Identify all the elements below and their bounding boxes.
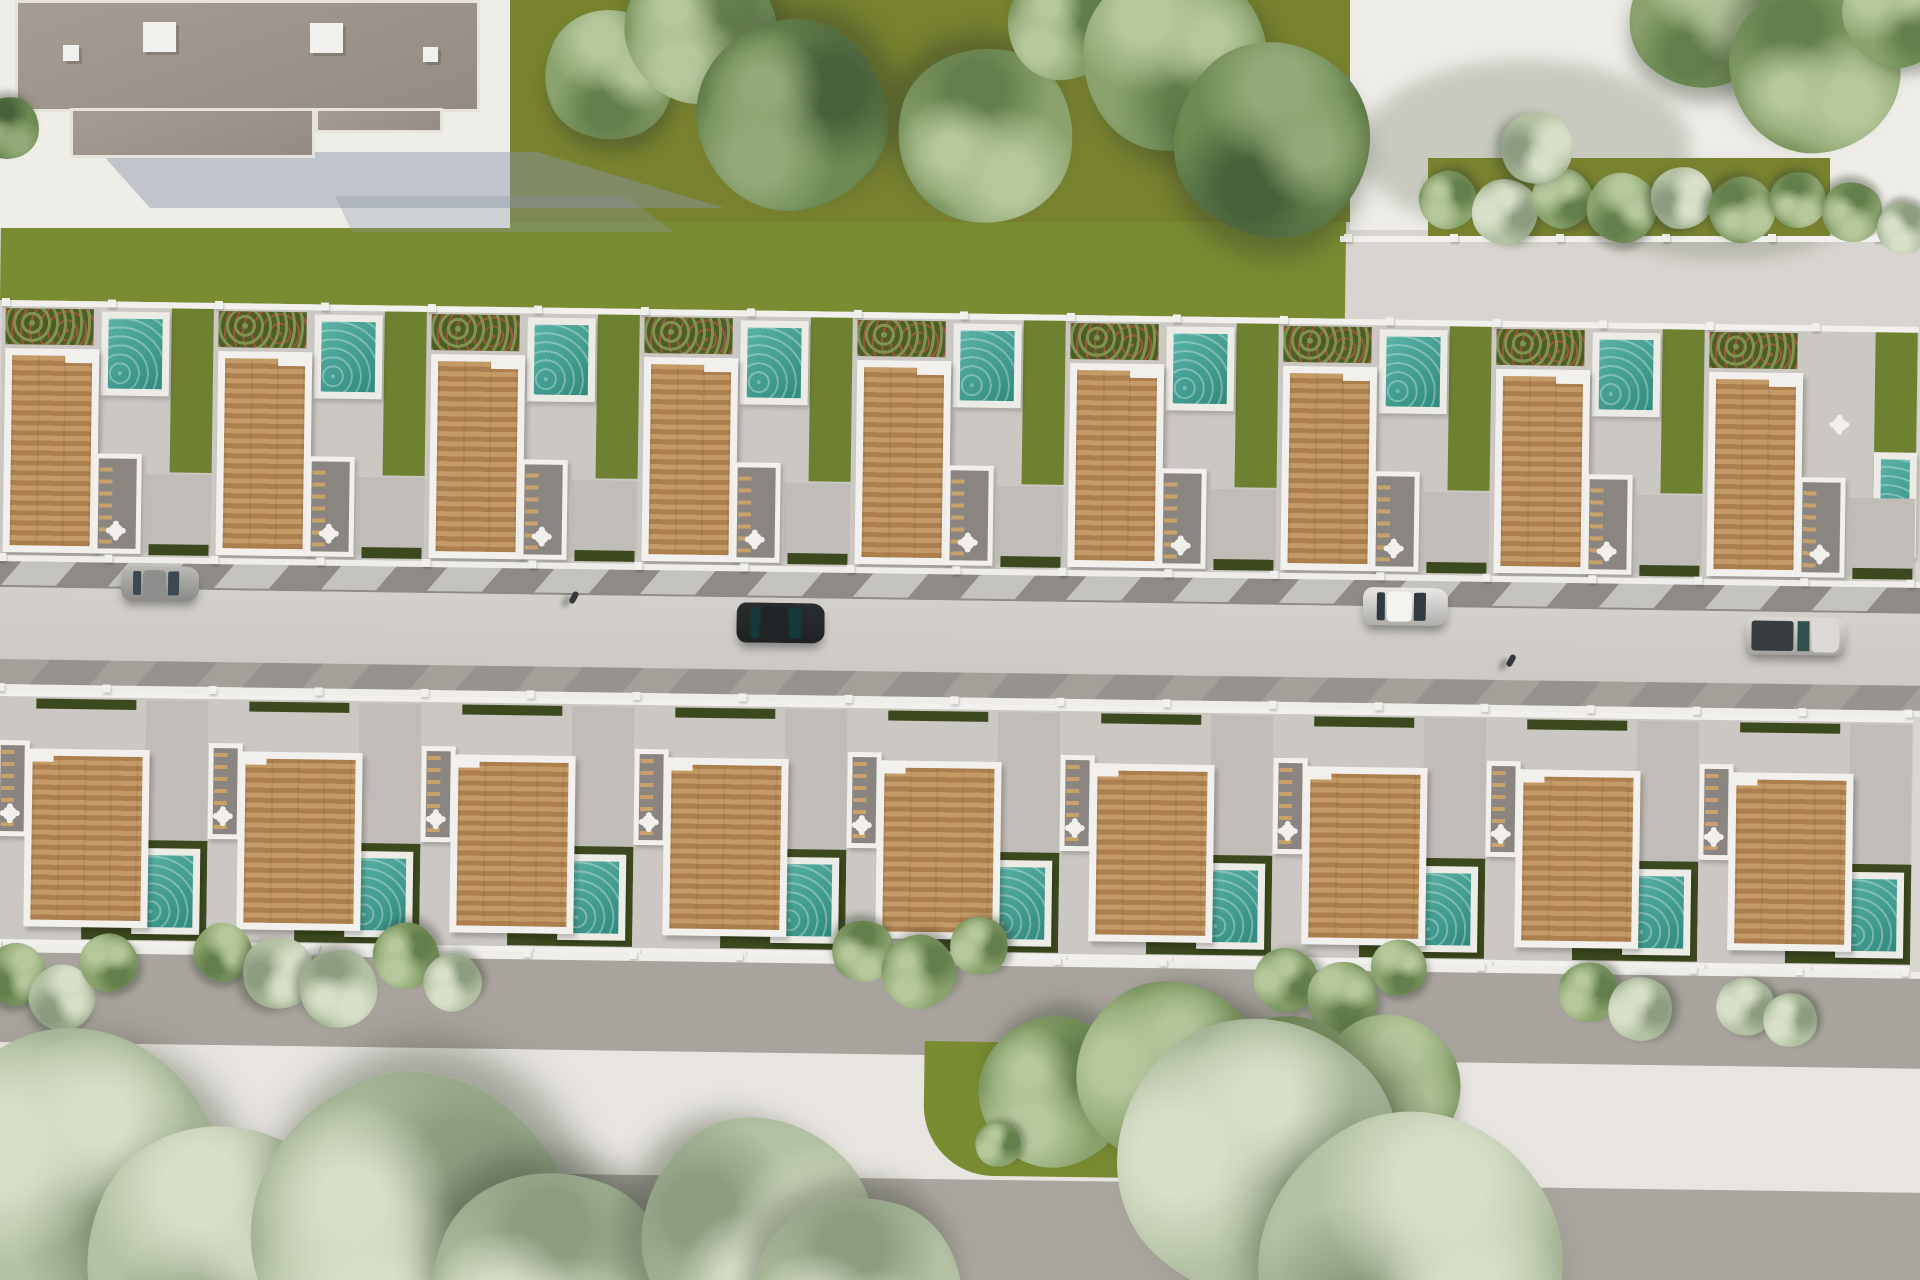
- street-fence-post: [1268, 701, 1276, 709]
- villa-lot: [206, 693, 423, 951]
- driveway: [1635, 721, 1699, 862]
- apartment-building-roof: [15, 0, 480, 112]
- apartment-building-roof: [315, 108, 443, 133]
- street-shrubs: [888, 710, 988, 721]
- villa-roof-terrace: [23, 748, 149, 928]
- street-fence-post: [1798, 708, 1806, 716]
- villa-roof-terrace: [215, 351, 312, 556]
- lot-garden-grass: [1022, 318, 1066, 485]
- planter: [431, 314, 519, 351]
- rooftop-unit: [143, 22, 176, 52]
- patio-table: [1813, 547, 1827, 561]
- stair-annex: [731, 462, 780, 563]
- car-rear-glass: [1376, 592, 1385, 620]
- villa-roof-terrace: [428, 354, 525, 559]
- street-fence-post: [632, 692, 640, 700]
- street-shrubs: [574, 550, 634, 562]
- driveway: [357, 477, 424, 556]
- hedge-fence-post: [1768, 234, 1776, 242]
- villa-wood-deck: [649, 364, 732, 555]
- villa-roof-step: [26, 748, 54, 761]
- villa-roof-terrace: [1727, 772, 1853, 952]
- driveway: [144, 700, 208, 841]
- driveway: [1848, 498, 1915, 577]
- pool: [1386, 336, 1441, 407]
- pool: [1599, 339, 1654, 410]
- villa-wood-deck: [1095, 770, 1207, 936]
- villa-lot: [211, 303, 428, 561]
- car: [1363, 587, 1449, 626]
- driveway: [570, 480, 637, 559]
- villa-lot: [1058, 705, 1275, 963]
- street-fence-post: [528, 560, 536, 568]
- hedge-fence-post: [1450, 234, 1458, 242]
- lot-garden-grass: [170, 306, 214, 473]
- villa-roof-terrace: [641, 357, 738, 562]
- promenade-fence-post: [311, 946, 319, 954]
- villa-wood-deck: [1521, 776, 1633, 942]
- street-fence-post: [315, 687, 323, 695]
- street-fence-post: [1376, 572, 1384, 580]
- street-shrubs: [148, 544, 208, 556]
- villa-lot: [1063, 315, 1280, 573]
- car-roof: [1811, 620, 1839, 652]
- car-rear-glass: [133, 571, 141, 595]
- promenade-fence-post: [1901, 969, 1909, 977]
- villa-lot: [845, 702, 1062, 960]
- street-fence-post: [1694, 577, 1702, 585]
- driveway: [783, 483, 850, 562]
- street-fence-post: [420, 689, 428, 697]
- villa-roof-step: [1090, 763, 1118, 776]
- lot-fence-post: [960, 311, 968, 319]
- street-fence-post: [103, 684, 111, 692]
- villa-roof-step: [664, 757, 692, 770]
- planter: [1070, 323, 1158, 360]
- patio-table: [535, 529, 549, 543]
- driveway: [1635, 495, 1702, 574]
- villa-wood-deck: [10, 355, 93, 546]
- street-shrubs: [1000, 556, 1060, 568]
- villa-lot: [0, 690, 210, 948]
- lot-fence-post: [2, 298, 10, 306]
- lot-fence-post: [1493, 319, 1501, 327]
- pool-deck: [527, 317, 596, 402]
- planter: [5, 308, 93, 345]
- villa-roof-step: [704, 358, 738, 372]
- car-roof: [1386, 591, 1412, 621]
- pool-deck: [953, 323, 1022, 408]
- street-fence-post: [1056, 698, 1064, 706]
- street-shrubs: [1314, 716, 1414, 727]
- truck-bed: [1751, 620, 1793, 651]
- villa-roof-step: [1556, 370, 1590, 384]
- pool: [747, 327, 802, 398]
- street-fence-post: [422, 559, 430, 567]
- driveway: [1848, 724, 1912, 865]
- car-rear-glass: [750, 608, 759, 638]
- villa-lot: [419, 696, 636, 954]
- promenade-fence-post: [629, 951, 637, 959]
- lot-fence-post: [1812, 323, 1820, 331]
- driveway: [1422, 718, 1486, 859]
- street-fence-post: [526, 690, 534, 698]
- street-fence-post: [1586, 705, 1594, 713]
- villa-roof-terrace: [662, 757, 788, 937]
- car-roof: [143, 570, 167, 596]
- stair-annex: [92, 453, 141, 554]
- villa-lot: [1484, 711, 1701, 969]
- car: [121, 566, 199, 601]
- lot-fence-post: [534, 305, 542, 313]
- pool-deck: [1166, 326, 1235, 411]
- villa-roof-terrace: [1088, 763, 1214, 943]
- lot-garden-grass: [1235, 321, 1279, 488]
- driveway: [1209, 715, 1273, 856]
- lot-fence-post: [1706, 322, 1714, 330]
- villa-wood-deck: [1734, 779, 1846, 945]
- pool: [1173, 333, 1228, 404]
- street-shrubs: [787, 553, 847, 565]
- street-fence-post: [1270, 571, 1278, 579]
- street-shrubs: [1639, 565, 1699, 577]
- lot-fence-post: [1280, 316, 1288, 324]
- villa-wood-deck: [1074, 370, 1157, 561]
- street-shrubs: [1527, 719, 1627, 730]
- hedge-fence-post: [1344, 234, 1352, 242]
- patio-table: [1387, 541, 1401, 555]
- street-shrubs: [462, 704, 562, 715]
- lot-fence-post: [641, 307, 649, 315]
- pool-deck: [314, 314, 383, 399]
- villa-lot: [637, 309, 854, 567]
- patio-table: [642, 815, 656, 829]
- hedge-fence-post: [1556, 234, 1564, 242]
- villa-lot: [1276, 318, 1493, 576]
- villa-roof-terrace: [1280, 366, 1377, 571]
- car: [1745, 616, 1846, 655]
- rooftop-unit: [63, 45, 79, 61]
- promenade-fence-post: [735, 952, 743, 960]
- villa-wood-deck: [223, 358, 306, 549]
- pool: [534, 324, 589, 395]
- patio-table: [3, 806, 17, 820]
- villa-roof-terrace: [854, 360, 951, 565]
- patio-table: [1281, 824, 1295, 838]
- stair-annex: [1796, 477, 1845, 578]
- villa-roof-step: [1303, 766, 1331, 779]
- promenade-fence-post: [1795, 967, 1803, 975]
- driveway: [1422, 492, 1489, 571]
- villa-wood-deck: [1500, 376, 1583, 567]
- street-fence-post: [316, 557, 324, 565]
- patio-table: [748, 532, 762, 546]
- villa-roof-step: [877, 760, 905, 773]
- villa-lot: [850, 312, 1067, 570]
- street-fence-post: [740, 563, 748, 571]
- pool-deck: [740, 320, 809, 405]
- street-fence-post: [1482, 574, 1490, 582]
- patio-table: [1174, 538, 1188, 552]
- driveway: [357, 703, 421, 844]
- villa-lot: [1271, 708, 1488, 966]
- promenade-fence-post: [1689, 966, 1697, 974]
- street: [0, 554, 1920, 717]
- villa-roof-terrace: [1067, 363, 1164, 568]
- street-fence-post: [1480, 704, 1488, 712]
- villa-roof-step: [452, 754, 480, 767]
- villa-lot: [424, 306, 641, 564]
- villa-lot: [1489, 321, 1706, 579]
- street-fence-post: [950, 696, 958, 704]
- villa-wood-deck: [669, 764, 781, 930]
- planter: [1283, 326, 1371, 363]
- lot-fence-post: [215, 301, 223, 309]
- villa-roof-terrace: [1706, 372, 1803, 577]
- villa-roof-terrace: [1514, 769, 1640, 949]
- street-fence-post: [0, 553, 6, 561]
- street-shrubs: [1852, 568, 1912, 580]
- villa-lot: [1702, 324, 1919, 582]
- street-fence-post: [1904, 710, 1912, 718]
- patio-table: [1068, 821, 1082, 835]
- street-shrubs: [1426, 562, 1486, 574]
- promenade-fence-post: [1053, 957, 1061, 965]
- bush: [299, 949, 378, 1028]
- car-roof: [761, 607, 788, 639]
- villa-roof-terrace: [449, 754, 575, 934]
- stair-annex: [1370, 471, 1419, 572]
- villa-roof-step: [491, 355, 525, 369]
- car-windshield: [1797, 621, 1809, 651]
- villa-wood-deck: [243, 758, 355, 924]
- pool-deck: [1592, 332, 1661, 417]
- car-windshield: [168, 571, 179, 595]
- street-fence-post: [1374, 702, 1382, 710]
- street-fence-post: [1164, 569, 1172, 577]
- patio-table: [1707, 830, 1721, 844]
- stair-annex: [944, 465, 993, 566]
- street-fence-post: [1692, 707, 1700, 715]
- villa-wood-deck: [1308, 773, 1420, 939]
- villa-roof-step: [1729, 772, 1757, 785]
- street-fence-post: [846, 565, 854, 573]
- street-fence-post: [634, 562, 642, 570]
- planter: [1496, 329, 1584, 366]
- street-fence-post: [209, 686, 217, 694]
- car-windshield: [1414, 593, 1426, 621]
- lot-fence-post: [1386, 317, 1394, 325]
- street-fence-post: [1162, 699, 1170, 707]
- lot-fence-post: [747, 308, 755, 316]
- planter: [857, 320, 945, 357]
- villa-lot: [0, 300, 215, 558]
- street-shrubs: [361, 547, 421, 559]
- street-shrubs: [1101, 713, 1201, 724]
- street-shrubs: [249, 702, 349, 713]
- apartment-building-roof: [70, 108, 315, 158]
- villa-wood-deck: [1287, 373, 1370, 564]
- villa-wood-deck: [436, 361, 519, 552]
- driveway: [996, 712, 1060, 853]
- promenade-fence-post: [523, 949, 531, 957]
- lot-garden-grass: [1447, 324, 1491, 491]
- villa-roof-step: [1769, 373, 1803, 387]
- building-shadow: [335, 196, 675, 232]
- villa-wood-deck: [1713, 379, 1796, 570]
- pool: [960, 330, 1015, 401]
- lot-fence-post: [854, 310, 862, 318]
- car: [736, 602, 825, 643]
- villa-roof-step: [917, 361, 951, 375]
- villa-roof-step: [278, 352, 312, 366]
- street-shrubs: [1740, 722, 1840, 733]
- street-shrubs: [675, 707, 775, 718]
- villa-roof-terrace: [1493, 369, 1590, 574]
- street-fence-post: [1800, 578, 1808, 586]
- street-fence-post: [1058, 568, 1066, 576]
- stair-annex: [305, 456, 354, 557]
- villa-roof-step: [1516, 769, 1544, 782]
- lot-garden-grass: [596, 312, 640, 479]
- lot-fence-post: [108, 300, 116, 308]
- villa-wood-deck: [456, 761, 568, 927]
- stair-annex: [518, 459, 567, 560]
- street-fence-post: [738, 693, 746, 701]
- driveway: [996, 486, 1063, 565]
- villa-roof-terrace: [875, 760, 1001, 940]
- lot-garden-grass: [383, 309, 427, 476]
- lot-fence-post: [1599, 320, 1607, 328]
- villa-roof-step: [239, 751, 267, 764]
- street-fence-post: [1588, 575, 1596, 583]
- north-area: [0, 0, 1920, 245]
- villa-roof-step: [1343, 367, 1377, 381]
- street-fence-post: [1906, 580, 1914, 588]
- street-fence-post: [0, 683, 5, 691]
- lot-fence-post: [1067, 313, 1075, 321]
- lot-fence-post: [321, 302, 329, 310]
- driveway: [1209, 489, 1276, 568]
- villa-roof-terrace: [236, 751, 362, 931]
- street-fence-post: [210, 556, 218, 564]
- lot-fence-post: [1173, 314, 1181, 322]
- villa-roof-terrace: [2, 348, 99, 553]
- villa-wood-deck: [861, 367, 944, 558]
- patio-table: [109, 524, 123, 538]
- villa-wood-deck: [882, 767, 994, 933]
- planter: [1709, 332, 1797, 369]
- car-windshield: [789, 608, 802, 638]
- rooftop-unit: [310, 23, 343, 53]
- villa-lot: [632, 699, 849, 957]
- street-shrubs: [36, 699, 136, 710]
- driveway: [783, 709, 847, 850]
- pool-deck: [101, 311, 170, 396]
- patio-table: [1832, 418, 1846, 432]
- pool: [108, 319, 163, 390]
- stair-annex: [1157, 468, 1206, 569]
- villa-wood-deck: [30, 756, 142, 922]
- pool: [321, 321, 376, 392]
- pool-deck: [1379, 329, 1448, 414]
- driveway: [144, 474, 211, 553]
- aerial-render-scene: [0, 0, 1920, 1280]
- street-fence-post: [844, 695, 852, 703]
- lot-fence-post: [428, 304, 436, 312]
- villa-roof-terrace: [1301, 766, 1427, 946]
- hedge-fence-post: [1662, 234, 1670, 242]
- promenade-fence-post: [1159, 958, 1167, 966]
- promenade-fence-post: [1477, 963, 1485, 971]
- villa-roof-step: [65, 349, 99, 363]
- stair-annex: [1583, 474, 1632, 575]
- street-fence-post: [952, 566, 960, 574]
- planter: [218, 311, 306, 348]
- villa-lot: [1697, 714, 1914, 972]
- lot-garden-grass: [809, 315, 853, 482]
- planter: [644, 317, 732, 354]
- rooftop-unit: [423, 47, 438, 62]
- lot-garden-grass: [1660, 327, 1704, 494]
- street-shrubs: [1213, 559, 1273, 571]
- patio-table: [429, 812, 443, 826]
- street-fence-post: [104, 554, 112, 562]
- driveway: [570, 706, 634, 847]
- villa-roof-step: [1130, 364, 1164, 378]
